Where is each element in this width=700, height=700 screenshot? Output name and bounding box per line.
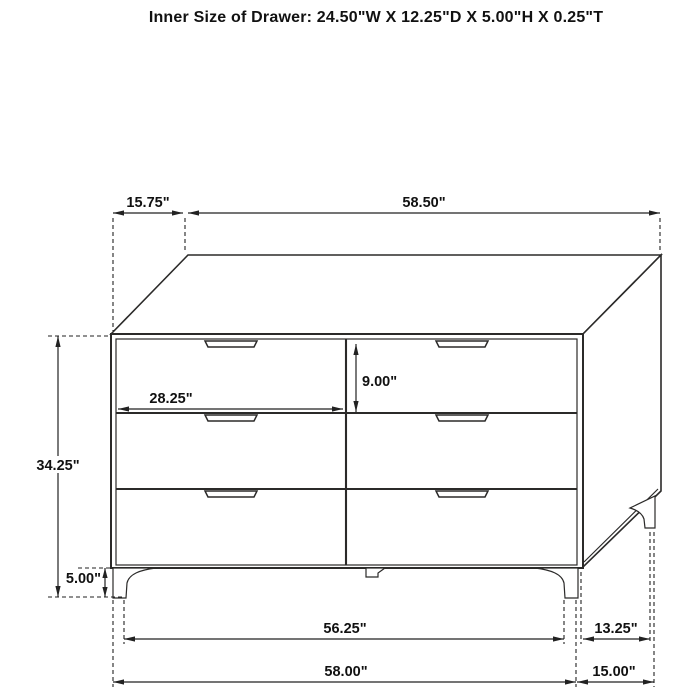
front-left-leg <box>113 568 156 598</box>
center-support-glide <box>366 568 385 577</box>
dim-label-overall-height: 34.25" <box>36 458 79 474</box>
dim-label-leg-height: 5.00" <box>66 571 101 587</box>
dim-front-leg-span: 56.25" <box>124 621 564 642</box>
dresser-front-legs <box>113 568 578 598</box>
dim-label-drawer-width: 28.25" <box>149 391 192 407</box>
front-right-leg <box>535 568 578 598</box>
dresser-front-face <box>111 334 583 568</box>
diagram-page: Inner Size of Drawer: 24.50"W X 12.25"D … <box>0 0 700 700</box>
dim-overall-height: 34.25" <box>31 336 85 597</box>
dim-label-front-leg-span: 56.25" <box>323 621 366 637</box>
dim-label-top-width: 58.50" <box>402 195 445 211</box>
dim-label-top-setback: 15.75" <box>126 195 169 211</box>
dresser-dimension-diagram: 15.75" 58.50" 34.25" 5.00" <box>0 0 700 700</box>
dim-label-overall-width: 58.00" <box>324 664 367 680</box>
dim-overall-depth: 15.00" <box>577 664 654 685</box>
dim-top-width: 58.50" <box>188 195 660 216</box>
dim-label-side-leg-span: 13.25" <box>594 621 637 637</box>
dim-label-drawer-height: 9.00" <box>362 374 397 390</box>
dim-leg-height: 5.00" <box>66 568 108 597</box>
dim-label-overall-depth: 15.00" <box>592 664 635 680</box>
dim-side-leg-span: 13.25" <box>583 621 650 642</box>
dim-overall-width: 58.00" <box>113 664 576 685</box>
dim-top-setback: 15.75" <box>113 195 183 216</box>
dresser-top-face <box>111 255 661 337</box>
